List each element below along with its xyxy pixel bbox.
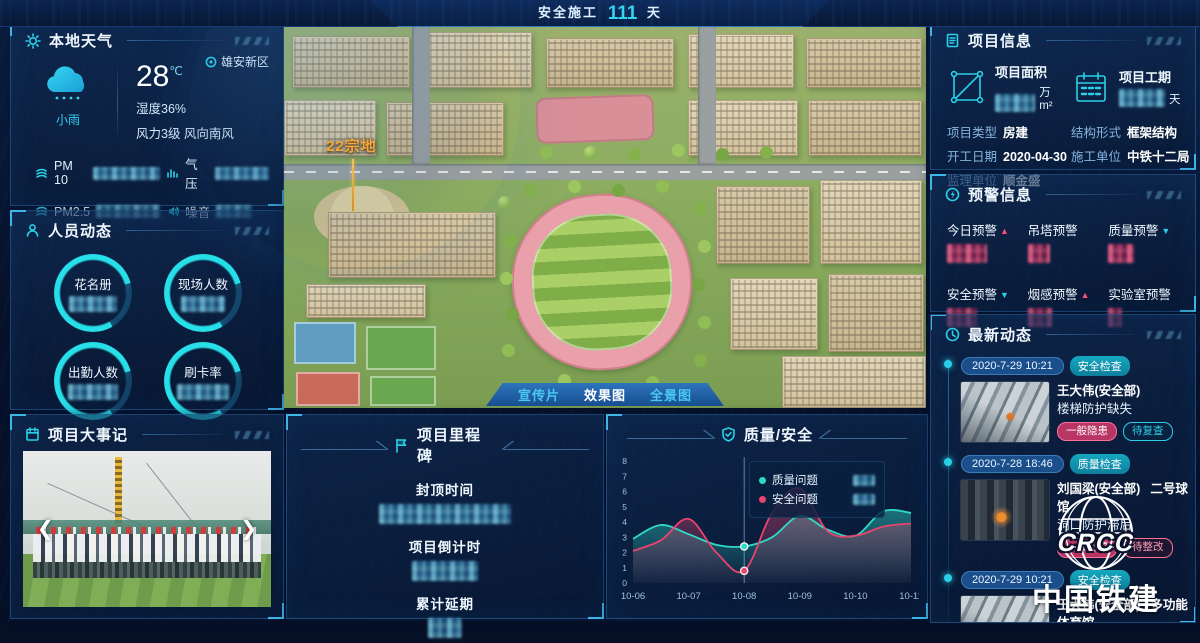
group-of-people xyxy=(33,527,261,580)
milestone-countdown: 项目倒计时 xyxy=(409,536,482,586)
trend-up-icon: ▲ xyxy=(1000,226,1009,236)
site-3d-render[interactable]: 22宗地 宣传片 效果图 全景图 xyxy=(284,26,926,408)
trend-down-icon: ▼ xyxy=(1161,226,1170,236)
building xyxy=(716,186,810,264)
safe-construction-counter: 安全施工 111 天 xyxy=(0,2,1200,25)
area-value-blurred xyxy=(995,94,1035,112)
metric-pm10: PM 10 xyxy=(35,154,160,192)
project-area-stat: 项目面积 万m² xyxy=(947,62,1061,112)
personnel-panel: 人员动态 花名册 现场人数 出勤人数 刷卡率 xyxy=(10,210,284,410)
school-building xyxy=(328,212,496,278)
building xyxy=(292,36,410,88)
warnings-panel-title: 预警信息 xyxy=(968,184,1032,205)
building xyxy=(808,100,922,156)
roster-value-blurred xyxy=(69,296,117,312)
delay-value-blurred xyxy=(428,618,462,638)
entry-category-badge: 质量检查 xyxy=(1070,454,1130,474)
ring-attendance: 出勤人数 xyxy=(51,344,135,418)
ring-swipe-rate: 刷卡率 xyxy=(161,344,245,418)
quality-series-label: 质量问题 xyxy=(772,472,818,488)
svg-text:10-06: 10-06 xyxy=(621,591,645,602)
view-mode-tabs: 宣传片 效果图 全景图 xyxy=(486,383,724,406)
crcc-acronym: CRCC xyxy=(1055,529,1137,558)
location-pin-icon xyxy=(205,56,217,68)
milestone-panel-title: 项目里程碑 xyxy=(417,424,496,466)
svg-text:1: 1 xyxy=(622,563,627,573)
trend-up-icon: ▲ xyxy=(1081,290,1090,300)
timeline-dot xyxy=(944,458,952,466)
info-project-type: 项目类型房建 xyxy=(947,122,1067,141)
milestone-photo[interactable]: ❮ ❯ xyxy=(23,451,271,607)
info-contractor: 施工单位中铁十二局 xyxy=(1071,146,1190,165)
person-icon xyxy=(25,223,40,238)
pm10-value-blurred xyxy=(93,167,160,180)
svg-text:0: 0 xyxy=(622,578,627,588)
header-deco xyxy=(235,227,269,235)
svg-text:10-09: 10-09 xyxy=(788,591,812,602)
warnings-panel: 预警信息 今日预警▲ 吊塔预警 质量预警▼ 安全预警▼ 烟感预警▲ 实验室预警 xyxy=(930,174,1196,312)
building xyxy=(806,38,922,88)
svg-text:7: 7 xyxy=(622,471,627,481)
issue-level-tag: 一般隐患 xyxy=(1057,422,1117,441)
warning-today: 今日预警▲ xyxy=(947,220,1022,268)
today-warning-value-blurred xyxy=(947,244,987,263)
project-info-panel: 项目信息 项目面积 万m² 项目工期 天 项目类型房建 结构形式框架结构 开工日… xyxy=(930,20,1196,170)
update-entry[interactable]: 2020-7-29 10:21 安全检查 王大伟(安全部) 楼梯防护缺失 一般隐… xyxy=(961,356,1195,442)
svg-text:6: 6 xyxy=(622,487,627,497)
document-icon xyxy=(945,33,960,48)
weather-panel: 本地天气 雄安新区 小雨 28℃ 湿度36% 风 xyxy=(10,20,284,206)
chart-panel-title: 质量/安全 xyxy=(744,424,813,445)
shield-check-icon xyxy=(721,427,736,442)
rain-cloud-icon xyxy=(41,62,95,104)
ring-roster: 花名册 xyxy=(51,256,135,330)
road xyxy=(412,26,430,164)
onsite-value-blurred xyxy=(181,296,225,312)
court-green xyxy=(366,326,436,370)
svg-text:10-08: 10-08 xyxy=(732,591,756,602)
header-deco xyxy=(1147,37,1181,45)
warning-quality: 质量预警▼ xyxy=(1108,220,1183,268)
events-panel-title: 项目大事记 xyxy=(48,424,128,445)
timeline-dot xyxy=(944,360,952,368)
wind: 风力3级 风向南风 xyxy=(136,123,234,142)
trees xyxy=(498,196,511,209)
court-green xyxy=(370,376,436,406)
metric-pressure: 气压 xyxy=(166,154,269,192)
temperature-unit: ℃ xyxy=(169,64,182,78)
personnel-panel-title: 人员动态 xyxy=(48,220,112,241)
project-duration-stat: 项目工期 天 xyxy=(1071,62,1185,112)
pressure-value-blurred xyxy=(215,167,269,180)
countdown-value-blurred xyxy=(412,561,478,581)
svg-text:2: 2 xyxy=(622,548,627,558)
header-deco xyxy=(1147,331,1181,339)
tab-panorama[interactable]: 全景图 xyxy=(650,385,692,404)
court-red xyxy=(296,372,360,406)
gym-building xyxy=(782,356,926,408)
tab-render-view[interactable]: 效果图 xyxy=(584,385,626,404)
flag-icon xyxy=(394,438,409,453)
air-swirl-icon xyxy=(35,167,48,180)
location-label: 雄安新区 xyxy=(221,53,269,70)
status-tag: 待复查 xyxy=(1123,422,1173,441)
attendance-value-blurred xyxy=(68,384,118,400)
timeline-dot xyxy=(944,574,952,582)
sun-gear-icon xyxy=(25,33,41,49)
warning-crane: 吊塔预警 xyxy=(1028,220,1103,268)
svg-text:10-10: 10-10 xyxy=(843,591,867,602)
chart-legend-tooltip: 质量问题 安全问题 xyxy=(749,461,885,518)
safety-series-dot xyxy=(759,496,766,503)
topping-time-value-blurred xyxy=(379,504,511,524)
milestone-panel: 项目里程碑 封顶时间 项目倒计时 累计延期 xyxy=(286,414,604,619)
swipe-rate-value-blurred xyxy=(177,384,229,400)
humidity: 湿度36% xyxy=(136,98,234,117)
crcc-name: 中国铁建 xyxy=(998,575,1194,619)
pressure-icon xyxy=(166,167,179,180)
building xyxy=(546,38,674,88)
sports-field-upper xyxy=(535,94,655,144)
alert-bolt-icon xyxy=(945,187,960,202)
crcc-logo: CRCC 中国铁建 xyxy=(998,491,1194,619)
weather-panel-title: 本地天气 xyxy=(49,30,113,51)
quality-value-blurred xyxy=(853,475,875,486)
milestone-topping-time: 封顶时间 xyxy=(379,479,511,529)
timeline-line xyxy=(948,359,949,622)
svg-text:5: 5 xyxy=(622,502,627,512)
entry-date: 2020-7-28 18:46 xyxy=(961,455,1064,473)
quality-warning-value-blurred xyxy=(1108,244,1134,263)
header-deco xyxy=(235,431,269,439)
clock-icon xyxy=(945,327,960,342)
entry-category-badge: 安全检查 xyxy=(1070,356,1130,376)
building xyxy=(386,102,504,156)
school-building xyxy=(306,284,426,318)
location-badge[interactable]: 雄安新区 xyxy=(205,53,269,70)
duration-value-blurred xyxy=(1119,89,1165,107)
svg-text:3: 3 xyxy=(622,532,627,542)
entry-thumbnail[interactable] xyxy=(961,382,1049,442)
area-measure-icon xyxy=(947,67,987,107)
trend-down-icon: ▼ xyxy=(1000,290,1009,300)
parcel-pin-line xyxy=(352,159,354,211)
building xyxy=(730,278,818,350)
tab-promo-video[interactable]: 宣传片 xyxy=(518,385,560,404)
calendar-icon xyxy=(1071,67,1111,107)
updates-panel-title: 最新动态 xyxy=(968,324,1032,345)
info-structure: 结构形式框架结构 xyxy=(1071,122,1190,141)
carousel-next-icon[interactable]: ❯ xyxy=(240,519,257,539)
project-events-panel: 项目大事记 ❮ ❯ xyxy=(10,414,284,619)
info-start-date: 开工日期2020-04-30 xyxy=(947,146,1067,165)
project-info-title: 项目信息 xyxy=(968,30,1032,51)
court-blue xyxy=(294,322,356,364)
carousel-prev-icon[interactable]: ❮ xyxy=(37,519,54,539)
safety-value-blurred xyxy=(853,494,875,505)
parcel-marker[interactable]: 22宗地 xyxy=(318,134,385,211)
road xyxy=(698,26,716,164)
quality-safety-panel: 质量/安全 01234567810-0610-0710-0810-0910-10… xyxy=(606,414,928,619)
building xyxy=(828,274,924,352)
building xyxy=(820,180,922,264)
svg-text:10-11: 10-11 xyxy=(899,591,919,602)
crane-warning-value-blurred xyxy=(1028,244,1050,263)
header-deco xyxy=(1147,191,1181,199)
parcel-label: 22宗地 xyxy=(318,134,385,157)
header-deco xyxy=(235,37,269,45)
building xyxy=(422,32,532,88)
entry-date: 2020-7-29 10:21 xyxy=(961,357,1064,375)
counter-unit: 天 xyxy=(647,5,662,20)
quality-series-dot xyxy=(759,477,766,484)
svg-text:8: 8 xyxy=(622,456,627,466)
trees xyxy=(584,146,597,159)
counter-days: 111 xyxy=(608,3,638,24)
ring-onsite: 现场人数 xyxy=(161,256,245,330)
svg-text:10-07: 10-07 xyxy=(676,591,700,602)
safety-series-label: 安全问题 xyxy=(772,491,818,507)
milestone-delay: 累计延期 xyxy=(416,593,474,643)
counter-prefix: 安全施工 xyxy=(538,5,598,20)
calendar-page-icon xyxy=(25,427,40,442)
weather-condition: 小雨 xyxy=(37,111,99,128)
svg-text:4: 4 xyxy=(622,517,627,527)
